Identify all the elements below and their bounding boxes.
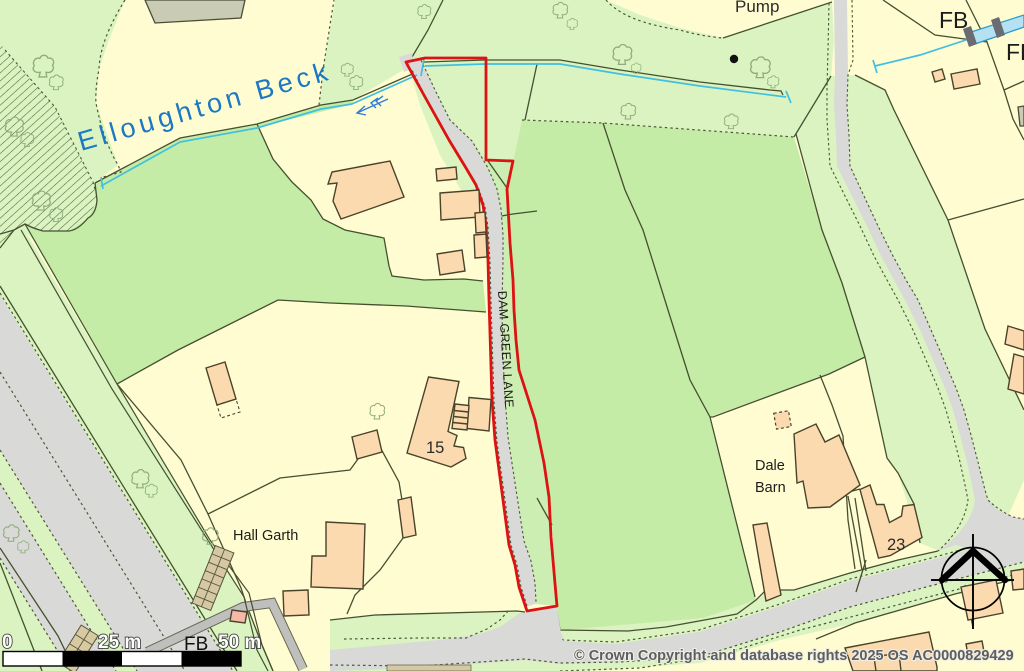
svg-text:Dale: Dale [755, 458, 785, 474]
svg-text:Hall Garth: Hall Garth [233, 528, 298, 544]
svg-text:25 m: 25 m [98, 632, 141, 653]
svg-text:FB: FB [939, 7, 968, 33]
svg-text:Barn: Barn [755, 480, 786, 496]
svg-text:15: 15 [426, 439, 444, 457]
svg-text:© Crown Copyright and database: © Crown Copyright and database rights 20… [574, 648, 1014, 664]
svg-text:FB: FB [184, 634, 208, 655]
svg-text:FB: FB [1006, 39, 1024, 65]
svg-text:50 m: 50 m [218, 632, 261, 653]
svg-text:23: 23 [887, 536, 905, 554]
svg-text:Pump: Pump [735, 0, 779, 16]
svg-text:0: 0 [2, 632, 13, 653]
